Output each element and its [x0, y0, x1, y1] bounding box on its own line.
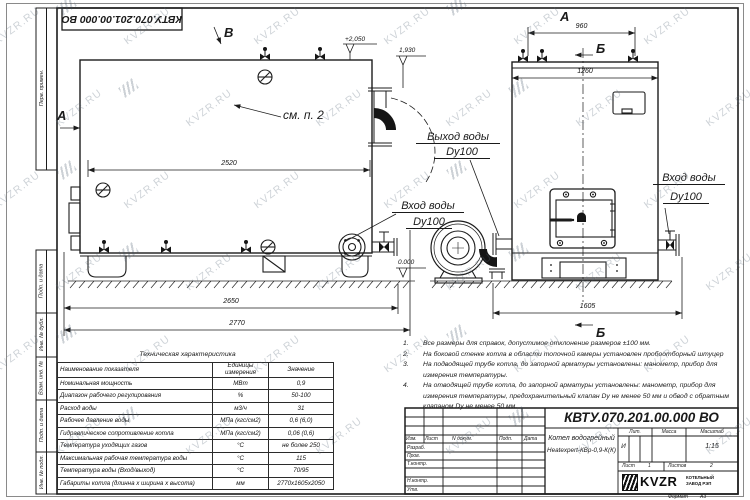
spec-row: Расход водым3/ч31: [58, 402, 334, 415]
kvzr-company-line2: ЗАВОД РЭП: [686, 481, 711, 486]
stamp-label-inv-podl: Инв. № подл.: [39, 451, 45, 493]
tb-scale-value: 1:15: [686, 443, 738, 450]
spec-name: Температура уходящих газов: [58, 440, 213, 453]
kvzr-company-line1: КОТЕЛЬНЫЙ: [686, 475, 714, 480]
kvzr-logo-icon: [622, 474, 638, 491]
section-marker-a-end: А: [560, 9, 569, 24]
note-item: 4.На отводящей трубе котла, до запорной …: [403, 381, 739, 413]
spec-units: МПа (кгс/см2): [213, 427, 269, 440]
spec-units: %: [213, 390, 269, 403]
titleblock-doc-number: КВТУ.070.201.00.000 ВО: [548, 410, 735, 425]
stamp-label-inv-dubl: Инв. № дубл.: [39, 312, 45, 356]
spec-name: Диапазон рабочего регулирования: [58, 390, 213, 403]
section-marker-b-bottom: Б: [596, 325, 605, 340]
water-inlet-side-dn-label: Dy100: [406, 216, 452, 229]
note-number: 4.: [403, 381, 423, 413]
spec-value: 0,9: [269, 377, 334, 390]
spec-row: Температура уходящих газов°Сне более 250: [58, 440, 334, 453]
titleblock-product-name: Котел водогрейный: [545, 435, 618, 442]
note-number: 3.: [403, 360, 423, 381]
spec-name: Максимальная рабочая температура воды: [58, 452, 213, 465]
spec-col-name-header: Наименование показателя: [58, 363, 213, 378]
spec-row: Температура воды (Вход/выход)°С70/95: [58, 465, 334, 478]
tb-mass-header: Масса: [652, 429, 686, 435]
drawing-sheet: КВТУ.070.201.00.000 ВО Перв. примен. Под…: [0, 0, 750, 500]
spec-row: Номинальная мощностьМВт0,9: [58, 377, 334, 390]
note-item: 1.Все размеры для справок, допустимое от…: [403, 339, 739, 350]
dim-2770: 2770: [64, 320, 410, 327]
spec-row: Диапазон рабочего регулирования%50-100: [58, 390, 334, 403]
note-text: На отводящей трубе котла, до запорной ар…: [423, 381, 739, 413]
note-item: 2.На боковой стенке котла в области топо…: [403, 350, 739, 361]
tb-sheet-value: 1: [648, 463, 651, 469]
tb-col-list: Лист: [425, 436, 438, 442]
format-label: Формат: [668, 494, 688, 500]
spec-name: Рабочее давление воды: [58, 415, 213, 428]
tb-col-izm: Изм.: [406, 436, 417, 442]
water-inlet-end-dn-label: Dy100: [663, 191, 709, 204]
water-inlet-end-label: Вход воды: [653, 172, 725, 185]
water-outlet-label: Выход воды: [416, 131, 500, 144]
note-text: На подводящей трубе котла, до запорной а…: [423, 360, 739, 381]
water-inlet-side-label: Вход воды: [392, 200, 464, 213]
spec-units: мм: [213, 477, 269, 490]
spec-units: °С: [213, 452, 269, 465]
tb-sheets-label: Листов: [668, 463, 686, 469]
kvzr-logo-text: KVZR: [640, 474, 677, 489]
spec-name: Гидравлическое сопротивление котла: [58, 427, 213, 440]
titleblock-product-model: Heatexpert-КВр-0,9-К(К): [545, 447, 618, 454]
spec-units: МВт: [213, 377, 269, 390]
spec-units: °С: [213, 440, 269, 453]
note-text: Все размеры для справок, допустимое откл…: [423, 339, 651, 350]
spec-header-row: Наименование показателя Единицы измерени…: [58, 363, 334, 378]
tb-col-sign: Подп.: [499, 436, 512, 442]
dim-960: 960: [528, 23, 635, 30]
note-number: 2.: [403, 350, 423, 361]
tb-row-tkontr: Т.контр.: [407, 461, 427, 467]
spec-value: 2770х1605х2050: [269, 477, 334, 490]
spec-col-value-header: Значение: [269, 363, 334, 378]
level-mark-zero: 0.000: [398, 259, 414, 266]
tb-row-razrab: Разраб.: [407, 445, 425, 451]
tb-row-prov: Пров.: [407, 453, 420, 459]
spec-value: 31: [269, 402, 334, 415]
level-mark-top: +2,050: [345, 36, 365, 43]
stamp-label-vzam-inv: Взам. инв. №: [39, 356, 45, 399]
water-outlet-dn-label: Dy100: [434, 146, 490, 159]
spec-name: Расход воды: [58, 402, 213, 415]
spec-col-units-header: Единицы измерения: [213, 363, 269, 378]
spec-value: 0,06 (0,6): [269, 427, 334, 440]
tb-row-utv: Утв.: [407, 487, 418, 493]
spec-row: Максимальная рабочая температура воды°С1…: [58, 452, 334, 465]
spec-table-title: Техническая характеристика: [57, 351, 318, 358]
stamp-label-podp-data-1: Подп. и дата: [39, 249, 45, 312]
spec-units: °С: [213, 465, 269, 478]
tb-col-doc: N докум.: [452, 436, 472, 442]
tb-sheets-value: 2: [710, 463, 713, 469]
top-doc-number: КВТУ.070.201.00.000 ВО: [62, 13, 182, 25]
spec-value: 0,6 (6,0): [269, 415, 334, 428]
spec-row: Гидравлическое сопротивление котлаМПа (к…: [58, 427, 334, 440]
tb-row-nkontr: Н.контр.: [407, 478, 428, 484]
spec-value: 50-100: [269, 390, 334, 403]
dim-1605: 1605: [493, 303, 682, 310]
spec-units: м3/ч: [213, 402, 269, 415]
tb-lit-value: И: [618, 443, 629, 450]
spec-name: Температура воды (Вход/выход): [58, 465, 213, 478]
spec-name: Габариты котла (длинна х ширина х высота…: [58, 477, 213, 490]
tb-scale-header: Масштаб: [686, 429, 738, 435]
dim-2650: 2650: [64, 298, 398, 305]
spec-units: МПа (кгс/см2): [213, 415, 269, 428]
stamp-label-perv-primen: Перв. примен.: [39, 7, 45, 169]
section-marker-v: В: [224, 25, 233, 40]
format-value: А3: [700, 494, 706, 500]
section-marker-a-side: А: [57, 108, 66, 123]
spec-name: Номинальная мощность: [58, 377, 213, 390]
dim-1260: 1260: [512, 68, 658, 75]
spec-value: не более 250: [269, 440, 334, 453]
spec-row: Рабочее давление водыМПа (кгс/см2)0,6 (6…: [58, 415, 334, 428]
tb-sheet-label: Лист: [622, 463, 635, 469]
notes-list: 1.Все размеры для справок, допустимое от…: [403, 339, 739, 413]
spec-value: 115: [269, 452, 334, 465]
spec-row: Габариты котла (длинна х ширина х высота…: [58, 477, 334, 490]
level-mark-outlet: 1,930: [399, 47, 415, 54]
note-item: 3.На подводящей трубе котла, до запорной…: [403, 360, 739, 381]
stamp-label-podp-data-2: Подп. и дата: [39, 399, 45, 451]
note-text: На боковой стенке котла в области топочн…: [423, 350, 723, 361]
note-number: 1.: [403, 339, 423, 350]
tb-lit-header: Лит.: [618, 429, 652, 435]
spec-table: Наименование показателя Единицы измерени…: [57, 362, 334, 490]
section-marker-b-top: Б: [596, 41, 605, 56]
tb-col-date: Дата: [524, 436, 537, 442]
see-note-callout: см. п. 2: [283, 108, 324, 122]
dim-2520: 2520: [88, 160, 370, 167]
spec-value: 70/95: [269, 465, 334, 478]
